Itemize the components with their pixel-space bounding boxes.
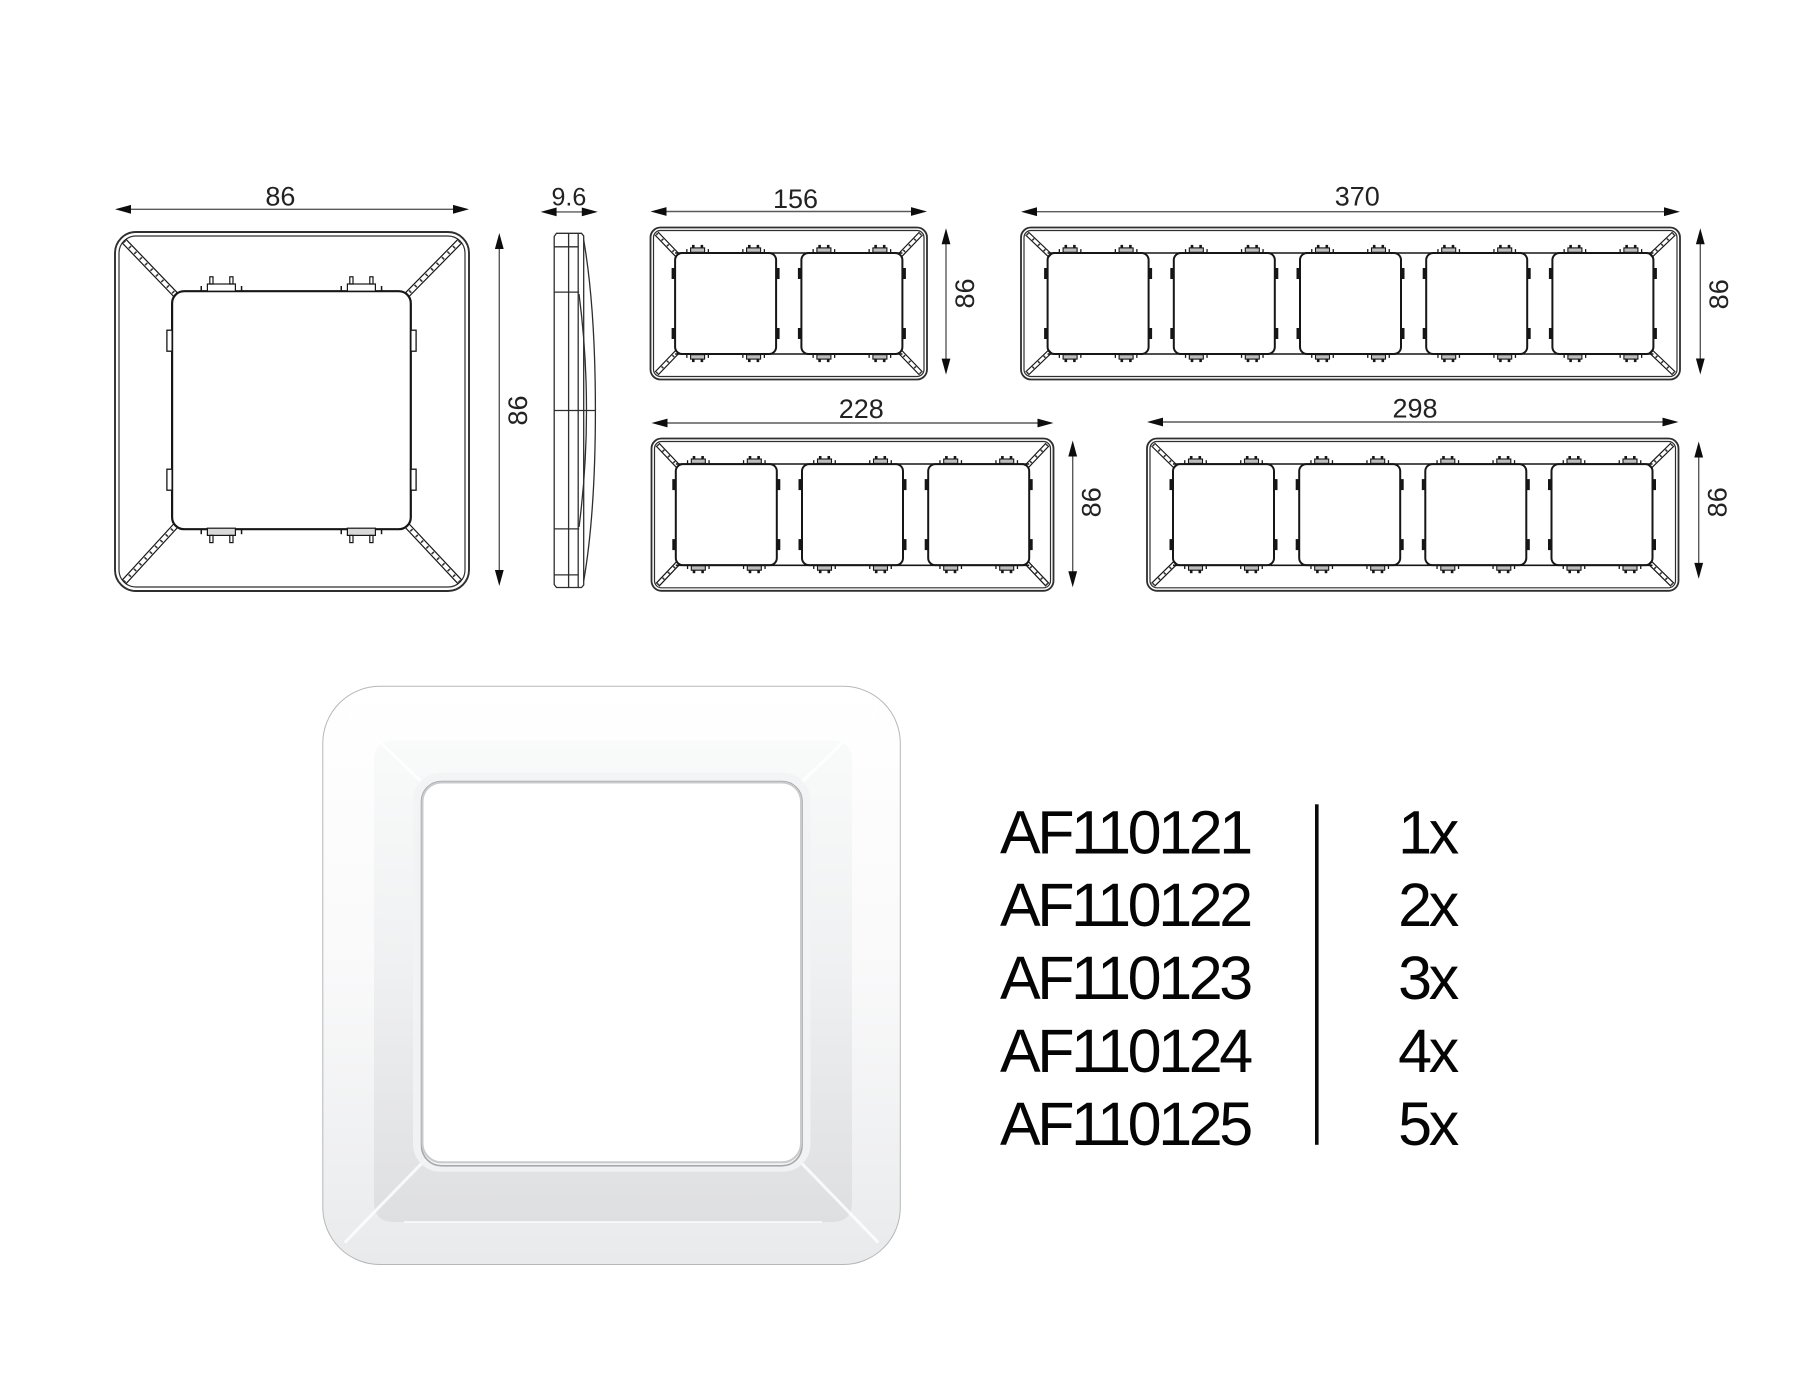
svg-text:86: 86: [950, 278, 980, 308]
svg-text:1x: 1x: [1398, 799, 1459, 867]
svg-text:AF110121: AF110121: [1000, 799, 1250, 867]
svg-text:AF110122: AF110122: [1000, 871, 1250, 939]
svg-text:2x: 2x: [1398, 871, 1459, 939]
svg-text:86: 86: [1703, 487, 1733, 517]
svg-text:3x: 3x: [1398, 944, 1459, 1012]
svg-text:AF110125: AF110125: [1000, 1090, 1251, 1158]
svg-text:4x: 4x: [1398, 1017, 1459, 1085]
svg-text:298: 298: [1392, 394, 1437, 424]
svg-text:370: 370: [1335, 181, 1380, 211]
svg-text:AF110124: AF110124: [1000, 1017, 1252, 1085]
svg-text:86: 86: [265, 182, 295, 212]
svg-text:86: 86: [1704, 279, 1734, 309]
svg-text:156: 156: [773, 184, 818, 214]
svg-text:5x: 5x: [1398, 1090, 1459, 1158]
svg-text:86: 86: [503, 395, 533, 425]
svg-text:86: 86: [1077, 487, 1107, 517]
svg-text:228: 228: [839, 394, 884, 424]
svg-text:AF110123: AF110123: [1000, 944, 1251, 1012]
svg-text:9.6: 9.6: [552, 184, 587, 212]
